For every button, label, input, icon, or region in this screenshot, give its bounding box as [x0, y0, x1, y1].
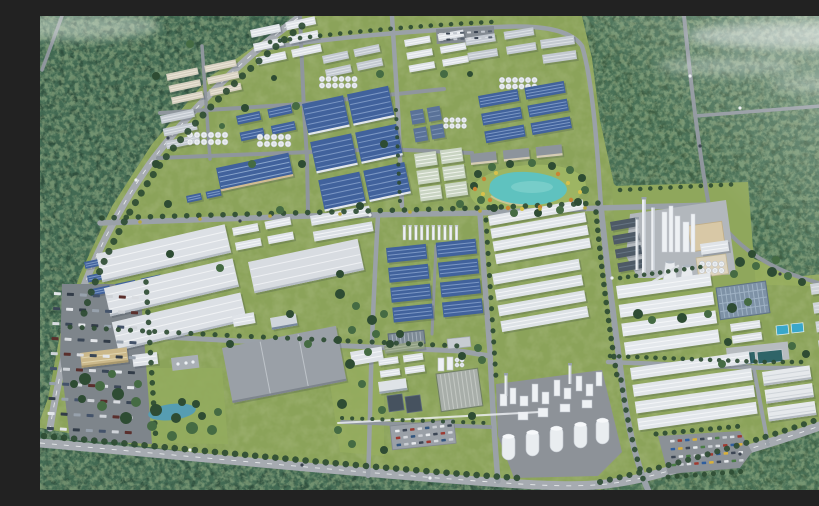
haze-overlay	[40, 16, 819, 490]
scene-root	[40, 16, 819, 490]
industrial-park-rendering	[40, 16, 819, 490]
scene-svg	[40, 16, 819, 490]
